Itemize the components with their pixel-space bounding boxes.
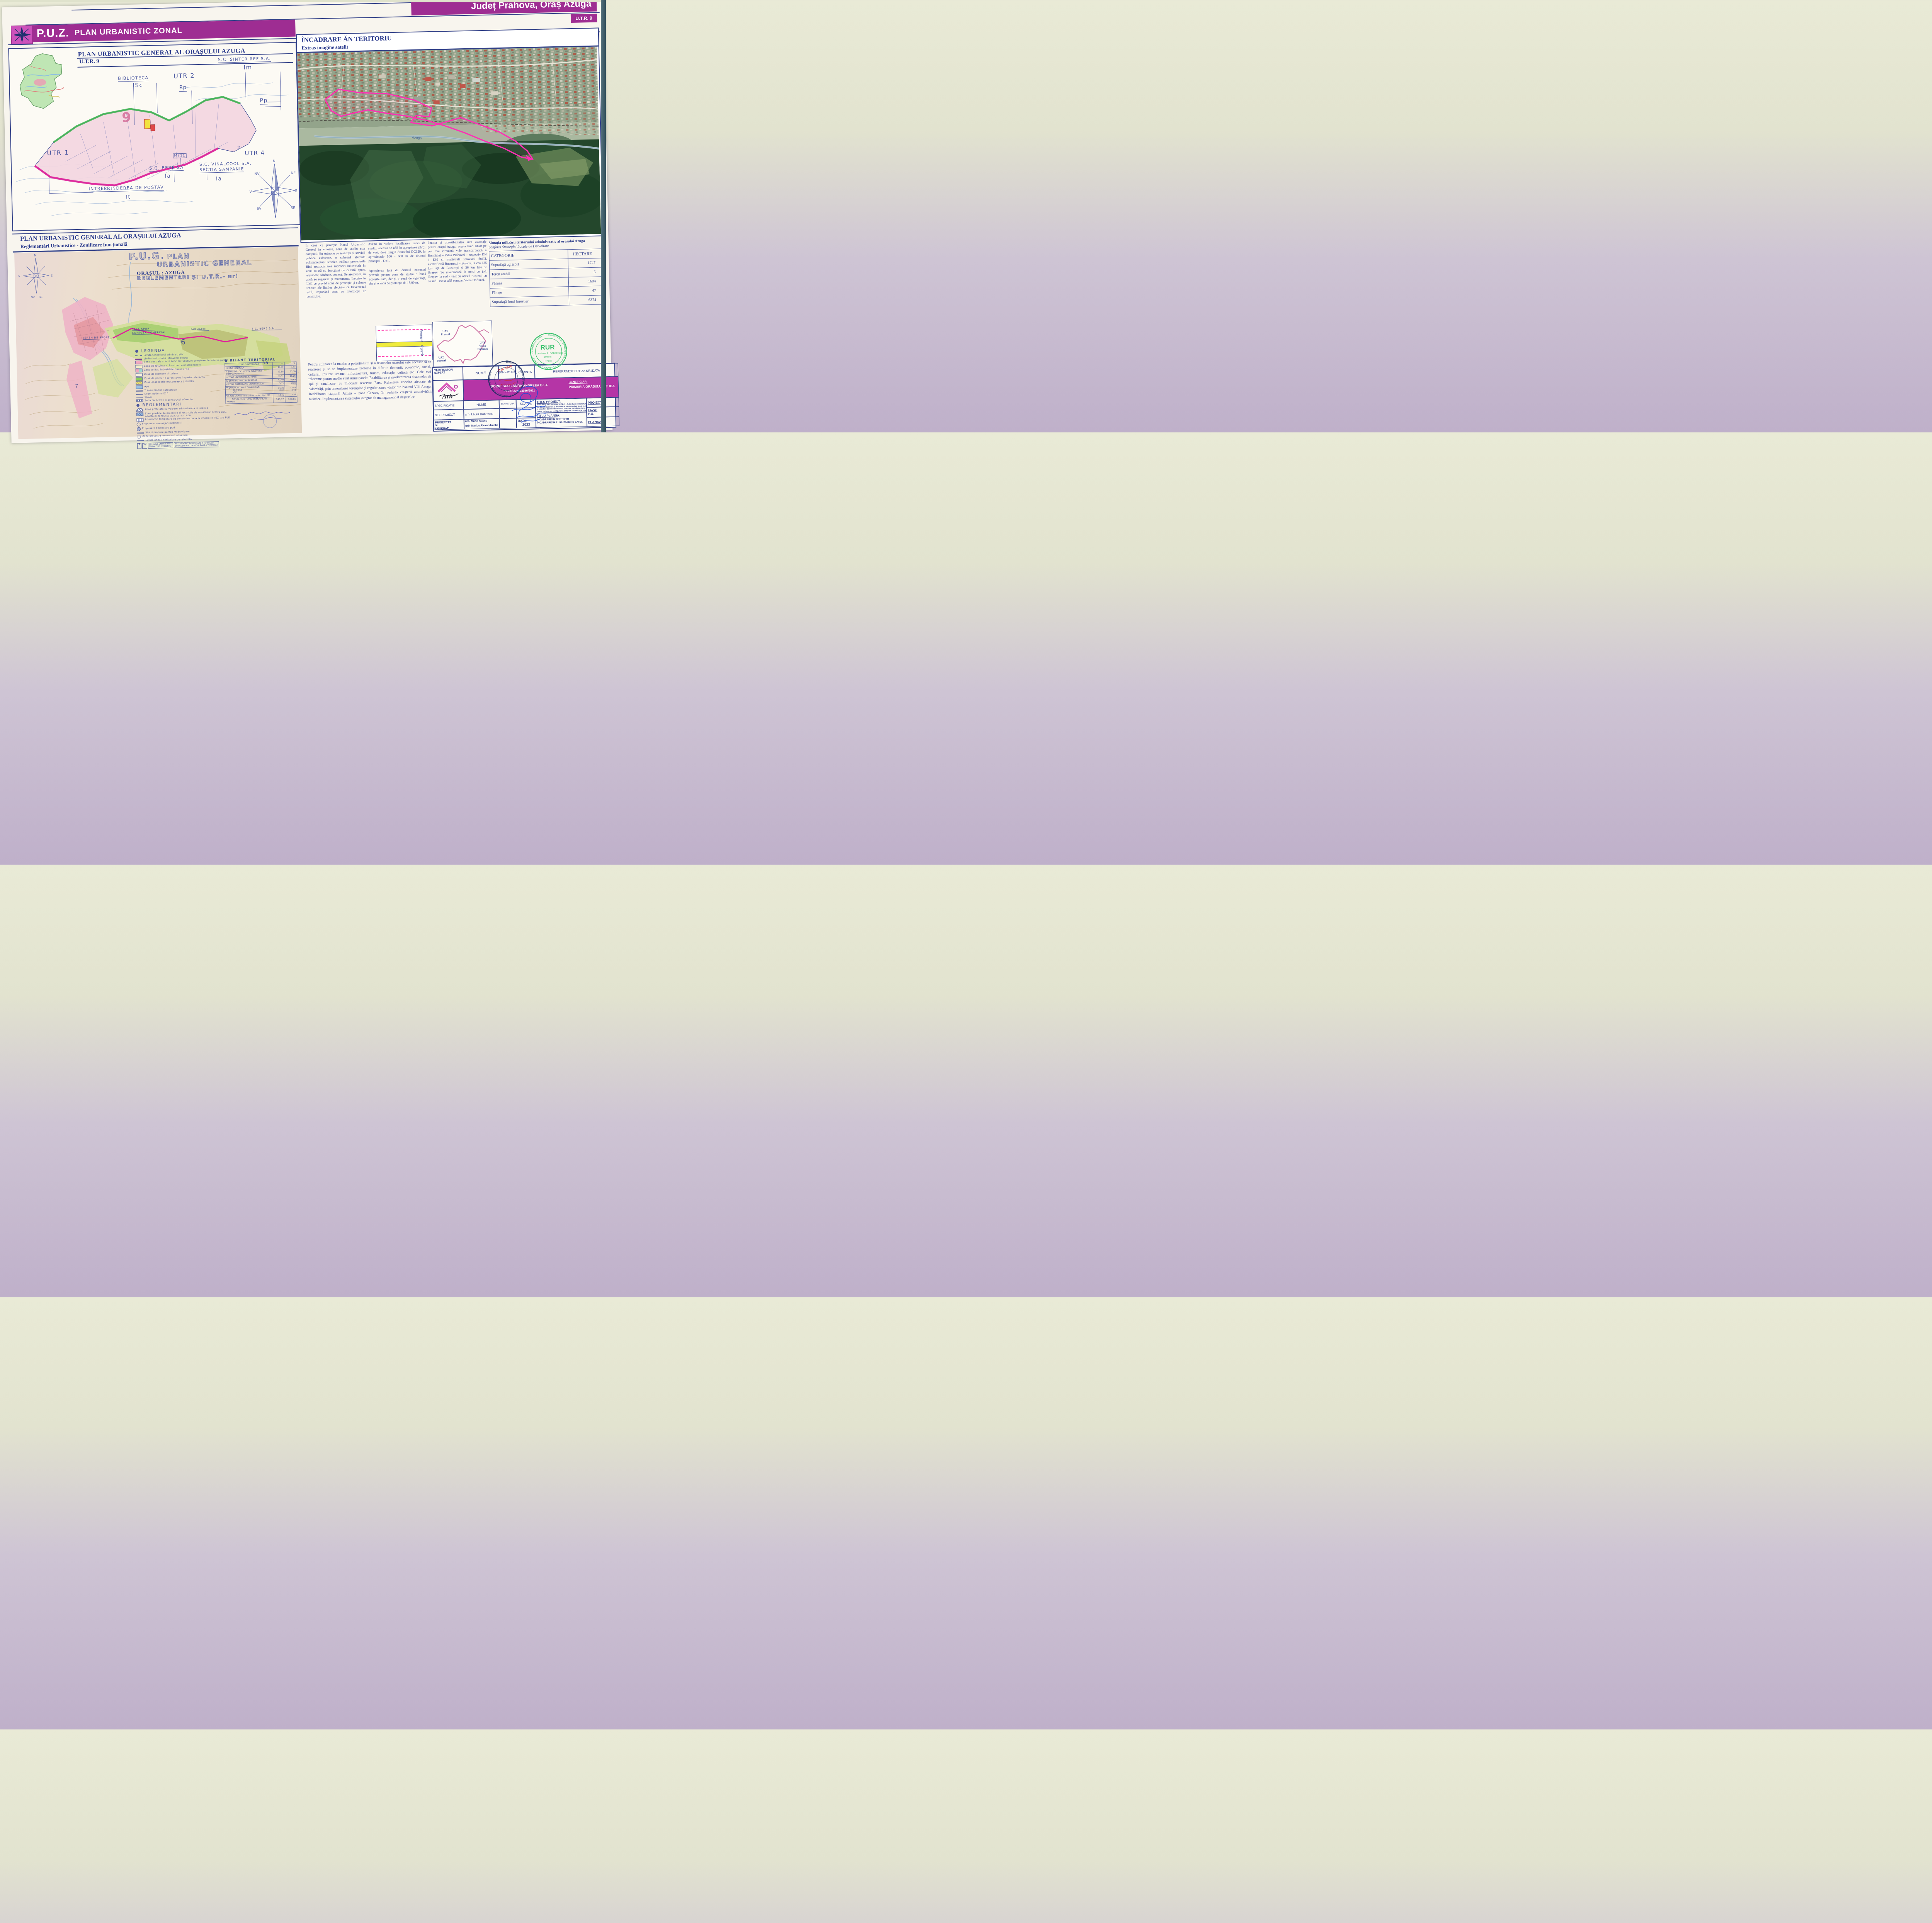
reglementari-label: Propunere amenajari intersectii [142, 422, 182, 426]
swatch-pod [137, 427, 141, 431]
bilant-total-label: TOTAL TERITORIU INTRAVILANPROPUS [226, 397, 273, 404]
land-row: Suprafață fond forestier6374 [490, 295, 602, 307]
label-vinalcool-2: SECTIA SAMPANIE [199, 167, 244, 173]
desenat-nume: urb. Marius Alexandru Ilie [465, 424, 498, 427]
dimension-lines [376, 325, 432, 361]
svg-text:E: E [51, 274, 53, 277]
uat-predeal-2: Predeal [441, 333, 450, 336]
arh-logo-icon: Arh [433, 380, 463, 401]
compass-ne: NE [291, 172, 296, 175]
panel-satelit-title: ÎNCADRARE ĂN TERITORIU [301, 34, 392, 44]
cell-nume-2: NUME [464, 400, 499, 409]
refbox-num: 7 [137, 443, 141, 449]
river-label: Azuga [412, 136, 422, 140]
puz-abbr: P.U.Z. [36, 27, 69, 40]
swatch-intersectii [137, 422, 141, 426]
compass-nv: NV [255, 172, 260, 176]
cell-specificatie: SPECIFICATIE [434, 401, 464, 410]
landmark-red [151, 125, 155, 131]
svg-text:SE: SE [39, 296, 43, 299]
bilant-zone-l3: C F [233, 391, 236, 394]
bilant-teritorial: ● BILANT TERITORIAL ZONE FUNCTIONALEha% … [224, 357, 298, 404]
bilant-total-l1: TOTAL TERITORIU INTRAVILAN [232, 397, 267, 401]
legend-label: Zona cai ferate si constructii aferente [145, 398, 193, 402]
label-z7: 7 [75, 383, 78, 389]
text-col-2: Având în vedere localizarea zonei de stu… [368, 241, 426, 286]
swatch-monument-naturii [137, 435, 141, 439]
swatch-parcuri [136, 377, 143, 381]
bilant-total-l2: PROPUS [226, 401, 235, 403]
label-pp-b: Pp [260, 97, 268, 104]
bilant-zone: VI ZONA CAILOR DE COMUNICATIIRUTIEREC F [225, 386, 273, 395]
refbox-utr: NUMARUL UNITATII TERI-TORIALE DE REFERIN… [148, 442, 173, 449]
pug-compass-icon: N V E SV SE [18, 253, 53, 299]
satellite-image: Azuga [297, 47, 601, 241]
scan-edge-top [0, 0, 606, 2]
refbox-line2: TORIALE DE REFERINTA [149, 445, 171, 448]
label-utr1: UTR 1 [47, 149, 69, 156]
land-use-block: Situația utilizării teritoriului adminis… [489, 238, 603, 307]
refbox-cut2: ZARE A TERENULUI [200, 444, 218, 447]
bilant-zone-l2: COMPLEMENTARE [226, 373, 244, 376]
protection-diagram: 18,00 m 18,00 m [376, 325, 433, 361]
label-bere: S.C. BERE SA [149, 165, 184, 172]
swatch-strazi [136, 397, 143, 398]
swatch-autostrada [136, 391, 143, 392]
uat-diagram: UAT Predeal UAT Valea Doftanei UAT Buște… [432, 321, 493, 368]
zone2-label: 2 [237, 145, 240, 150]
panel-satelit-subtitle: Extras imagine satelit [301, 44, 348, 51]
svg-text:V: V [18, 275, 20, 278]
swatch-gospodarie [136, 381, 143, 385]
reglementari-label: Propunere amenajare pod [142, 426, 175, 431]
refbox-potcut: POT- PROCENT DE OCUPARE A TERENULUICUT C… [174, 441, 219, 448]
signature [505, 380, 553, 427]
compass-star-icon [11, 26, 32, 44]
beneficiar-label: BENEFICIAR: [569, 379, 615, 384]
bilant-total-pct: 100,00 [285, 396, 297, 403]
stamp-tna: TNA 4349 [497, 364, 512, 373]
bilant-ha: 31,208,80 [273, 385, 285, 394]
rur-role: arhitect [544, 356, 551, 358]
legend-label: Limita teritoriului administrativ [144, 353, 184, 357]
legend-label: Zona unitati industriale / ocol silvic [144, 368, 189, 372]
legend-label: Zona de recreere si turism [144, 372, 178, 376]
legend-label: Ape [145, 385, 150, 389]
proiectat-nume: urb. Maria Ivașcu [465, 419, 498, 423]
bilant-pct: 65,50 [284, 369, 296, 375]
cell-verificator: VERIFICATOR/ EXPERT [433, 367, 463, 381]
swatch-industriale [136, 369, 143, 372]
label-im: Im [243, 64, 252, 71]
bilant-pct-2: 3,62 [291, 389, 296, 391]
cell-proiectat: PROIECTAT ȘI DESENAT [434, 419, 464, 430]
bilant-total-ha: 243,20 [273, 397, 285, 403]
legend-title-text: LEGENDA [141, 349, 165, 353]
swatch-limita-intravilan [135, 359, 142, 360]
land-ha: 6374 [569, 295, 603, 305]
land-ha: 1694 [568, 277, 602, 287]
panel-pug-subtitle: Reglementări Urbanistice - Zonificare fu… [20, 241, 127, 250]
compass-rose-icon: N NE E SE SV V NV [248, 157, 298, 224]
dim-18m-bottom: 18,00 m [420, 345, 423, 354]
rur-stamp: REGISTRUL URBANISTILOR DIN ROMANIA • CU … [529, 331, 569, 371]
svg-text:N: N [34, 253, 36, 257]
swatch-limita-administrativ [135, 355, 142, 356]
panel-pug: PLAN URBANISTIC GENERAL AL ORAȘULUI AZUG… [12, 227, 304, 440]
utr-banner: U.T.R. 9 [571, 14, 597, 23]
refbox-cut1: CUT COEFICIENT DE UTILI- [175, 445, 200, 447]
text-bottom-paragraph: Pentru utilizarea la maxim a potențialul… [308, 360, 432, 433]
land-cat: Suprafață fond forestier [490, 296, 569, 307]
land-head-hectare: HECTARE [568, 249, 602, 259]
land-use-table: CATEGORIEHECTARE Suprafață agricolă1747 … [489, 248, 603, 307]
cell-sef-nume: arh. Laura Dobrescu [464, 408, 500, 419]
label-sinter: S.C. SINTER REF S.A. [218, 56, 271, 63]
compass-sv: SV [257, 207, 262, 211]
refbox-pct: % [142, 443, 147, 449]
bilant-pct: 12,833,62 [285, 385, 297, 393]
uat-doftanei-label: UAT Valea Doftanei [477, 341, 488, 351]
rur-text: RUR [540, 343, 554, 351]
pug-title-abbr: P.U.G. [129, 250, 164, 262]
text-col-1: În ceea ce privește Planul Urbanistic Ge… [306, 242, 368, 362]
panel-utr9-subtitle: U.T.R. 9 [79, 58, 99, 65]
rur-name: Andreea E. DOBRESCU [537, 352, 563, 355]
label-pp-a: Pp [179, 85, 187, 92]
panel-utr9: PLAN URBANISTIC GENERAL AL ORAȘULUI AZUG… [8, 42, 300, 231]
text-col2-p2: Apropierea față de drumul comunal preved… [369, 267, 426, 286]
beneficiar-name: PRIMĂRIA ORAȘULUI AZUGA [569, 384, 615, 389]
compass-n: N [273, 160, 276, 163]
label-utr4: UTR 4 [245, 149, 265, 156]
swatch-limita-utr [137, 440, 144, 441]
label-zone9: 9 [122, 110, 131, 126]
plan-sheet: P.U.Z. PLAN URBANISTIC ZONAL Județ Praho… [2, 0, 612, 443]
bilant-table: ZONE FUNCTIONALEha% I ZONA CENTRALA18,50… [224, 362, 297, 404]
bilant-ha: 73,58 [272, 369, 284, 375]
label-ia-1: Ia [165, 173, 171, 179]
utr-reference-box: 7 % NUMARUL UNITATII TERI-TORIALE DE REF… [137, 441, 234, 449]
label-ia-2: Ia [216, 176, 222, 182]
land-ha: 6 [568, 267, 602, 277]
cell-sef-proiect: SEF PROIECT [434, 409, 464, 420]
rur-code: D20 E [544, 360, 552, 362]
land-ha: 1747 [568, 258, 602, 268]
reglementari-title-text: REGLEMENTARI [142, 402, 182, 407]
proiect-nr-label: PROIECT [588, 400, 602, 405]
label-utr2: UTR 2 [173, 72, 195, 80]
cell-proiectat-nume: urb. Maria Ivașcu urb. Marius Alexandru … [464, 418, 500, 429]
label-sala-sport: SALA SPORT [132, 327, 151, 331]
pug-legend: ● LEGENDA Limita teritoriului administra… [135, 347, 234, 449]
compass-se: SE [291, 206, 296, 210]
legend-label: Strazi [145, 396, 152, 398]
pug-map: N V E SV SE [14, 247, 302, 439]
text-col2-p1: Având în vedere localizarea zonei de stu… [368, 241, 426, 263]
scan-edge-right [601, 0, 606, 432]
utr-badge: U.T.R. 9 [575, 15, 592, 21]
panel-satelit: ÎNCADRARE ĂN TERITORIU Extras imagine sa… [296, 27, 604, 243]
arh-logo-text: Arh [442, 393, 453, 400]
label-m711: M711 [173, 153, 186, 158]
dim-18m-top: 18,00 m [420, 331, 422, 339]
svg-text:SV: SV [31, 296, 35, 299]
land-ha: 47 [568, 286, 602, 296]
label-z6: 6 [181, 338, 185, 346]
swatch-recreere [136, 373, 143, 376]
swatch-zona-centrala [135, 361, 142, 364]
uat-busteni-label: UAT Bușteni [437, 356, 446, 362]
bilant-ha-2: 8,80 [279, 389, 284, 391]
legend-label: Traseu propus autostrada [145, 389, 177, 392]
desenat-label: DESENAT [435, 426, 463, 430]
swatch-locuinte [135, 365, 142, 368]
uat-busteni-2: Bușteni [437, 359, 446, 362]
swatch-strazi-modernizare [137, 432, 144, 434]
swatch-drum-e15 [136, 394, 143, 394]
expert-label: EXPERT [434, 371, 461, 374]
label-it: It [126, 194, 131, 200]
utr9-zone [33, 96, 257, 187]
swatch-protejata [136, 408, 143, 411]
text-col-3: Poziția și accesibilitatea sunt avantaje… [428, 240, 487, 283]
puz-title: PLAN URBANISTIC ZONAL [75, 26, 182, 37]
label-biblioteca: BIBLIOTECA [118, 75, 149, 82]
cell-arh-logo: Arh [433, 380, 463, 401]
compass-v: V [250, 190, 252, 194]
reglementari-label: Limita unitati teritoriale de referinta [146, 438, 192, 442]
swatch-interdictie [136, 418, 143, 422]
reglementari-label: Zona protectie monument al naturii [142, 434, 188, 439]
landmark-yellow [145, 119, 151, 129]
uat-doftanei-3: Doftanei [478, 347, 488, 351]
handwritten-note [234, 411, 290, 429]
swatch-cai-ferate [136, 399, 143, 401]
compass-e: E [295, 189, 298, 193]
compass-logo-box [11, 25, 33, 44]
pug-title-1: PLAN [167, 253, 190, 261]
label-farmacie: FARMACIE [190, 328, 206, 331]
uat-predeal-label: UAT Predeal [441, 330, 450, 336]
plansa-nr-label: PLANSA [588, 420, 602, 424]
pug-map-title: P.U.G. PLAN URBANISTIC GENERAL [129, 250, 252, 269]
bilant-zone-l1: VI ZONA CAILOR DE COMUNICATII [226, 386, 260, 389]
legend-label: Drum national E15 [145, 392, 168, 395]
swatch-perdele [136, 412, 143, 416]
swatch-ape [136, 385, 143, 389]
label-isc: ISc [133, 82, 143, 89]
